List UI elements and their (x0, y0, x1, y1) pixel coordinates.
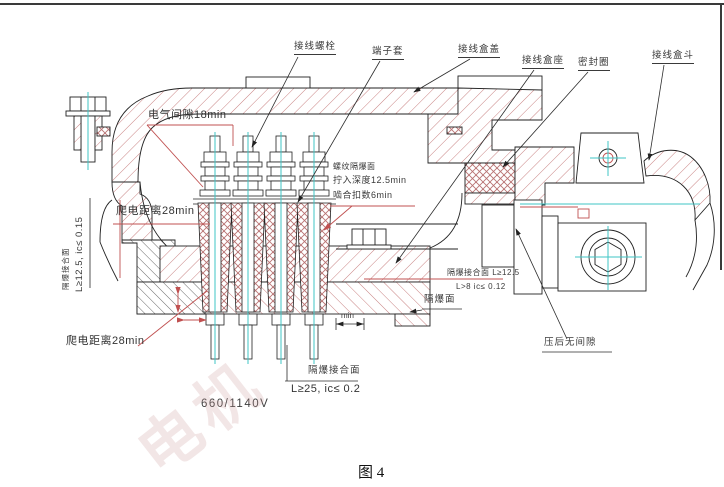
drawing-sheet: 隔爆接合面 L≥12.5, ic≤ 0.15 接线螺栓 端子套 接线盒盖 接线盒… (0, 0, 724, 487)
note-spigot-joint-1: 隔爆接合面 L≥12.5 (447, 269, 520, 277)
note-thread-flameproof-3: 啮合扣数6min (333, 191, 393, 200)
note-thread-flameproof-1: 螺纹隔爆面 (333, 163, 376, 171)
note-creepage-upper: 爬电距离28min (116, 206, 194, 217)
figure-caption: 图 4 (358, 461, 384, 482)
label-seal-ring: 密封圈 (578, 58, 610, 71)
left-joint-spec: L≥12.5, ic≤ 0.15 (74, 217, 85, 292)
note-thread-flameproof-2: 拧入深度12.5min (333, 176, 407, 185)
label-box-hopper: 接线盒斗 (652, 51, 694, 64)
note-creepage-lower: 爬电距离28min (66, 336, 144, 347)
note-electrical-clearance: 电气间隙18min (148, 110, 226, 121)
note-bottom-joint-name: 隔爆接合面 (308, 366, 361, 376)
note-bottom-joint-spec: L≥25, ic≤ 0.2 (291, 384, 360, 395)
note-no-gap: 压后无间隙 (544, 338, 597, 348)
label-terminal-bolt: 接线螺栓 (294, 42, 336, 55)
drawing-canvas: 隔爆接合面 L≥12.5, ic≤ 0.15 (0, 0, 724, 487)
note-flameproof-surface: 隔爆面 (424, 295, 456, 305)
cavity-floor (336, 193, 462, 249)
gland-body (482, 200, 646, 294)
note-min-dimension: min (341, 312, 354, 320)
label-terminal-sleeve: 端子套 (372, 47, 404, 60)
left-joint-name: 隔爆接合面 (60, 248, 70, 291)
voltage-rating: 660/1140V (201, 398, 269, 410)
note-spigot-joint-2: L>8 ic≤ 0.12 (456, 283, 506, 291)
label-box-cover: 接线盒盖 (458, 45, 500, 58)
label-box-seat: 接线盒座 (522, 56, 564, 69)
